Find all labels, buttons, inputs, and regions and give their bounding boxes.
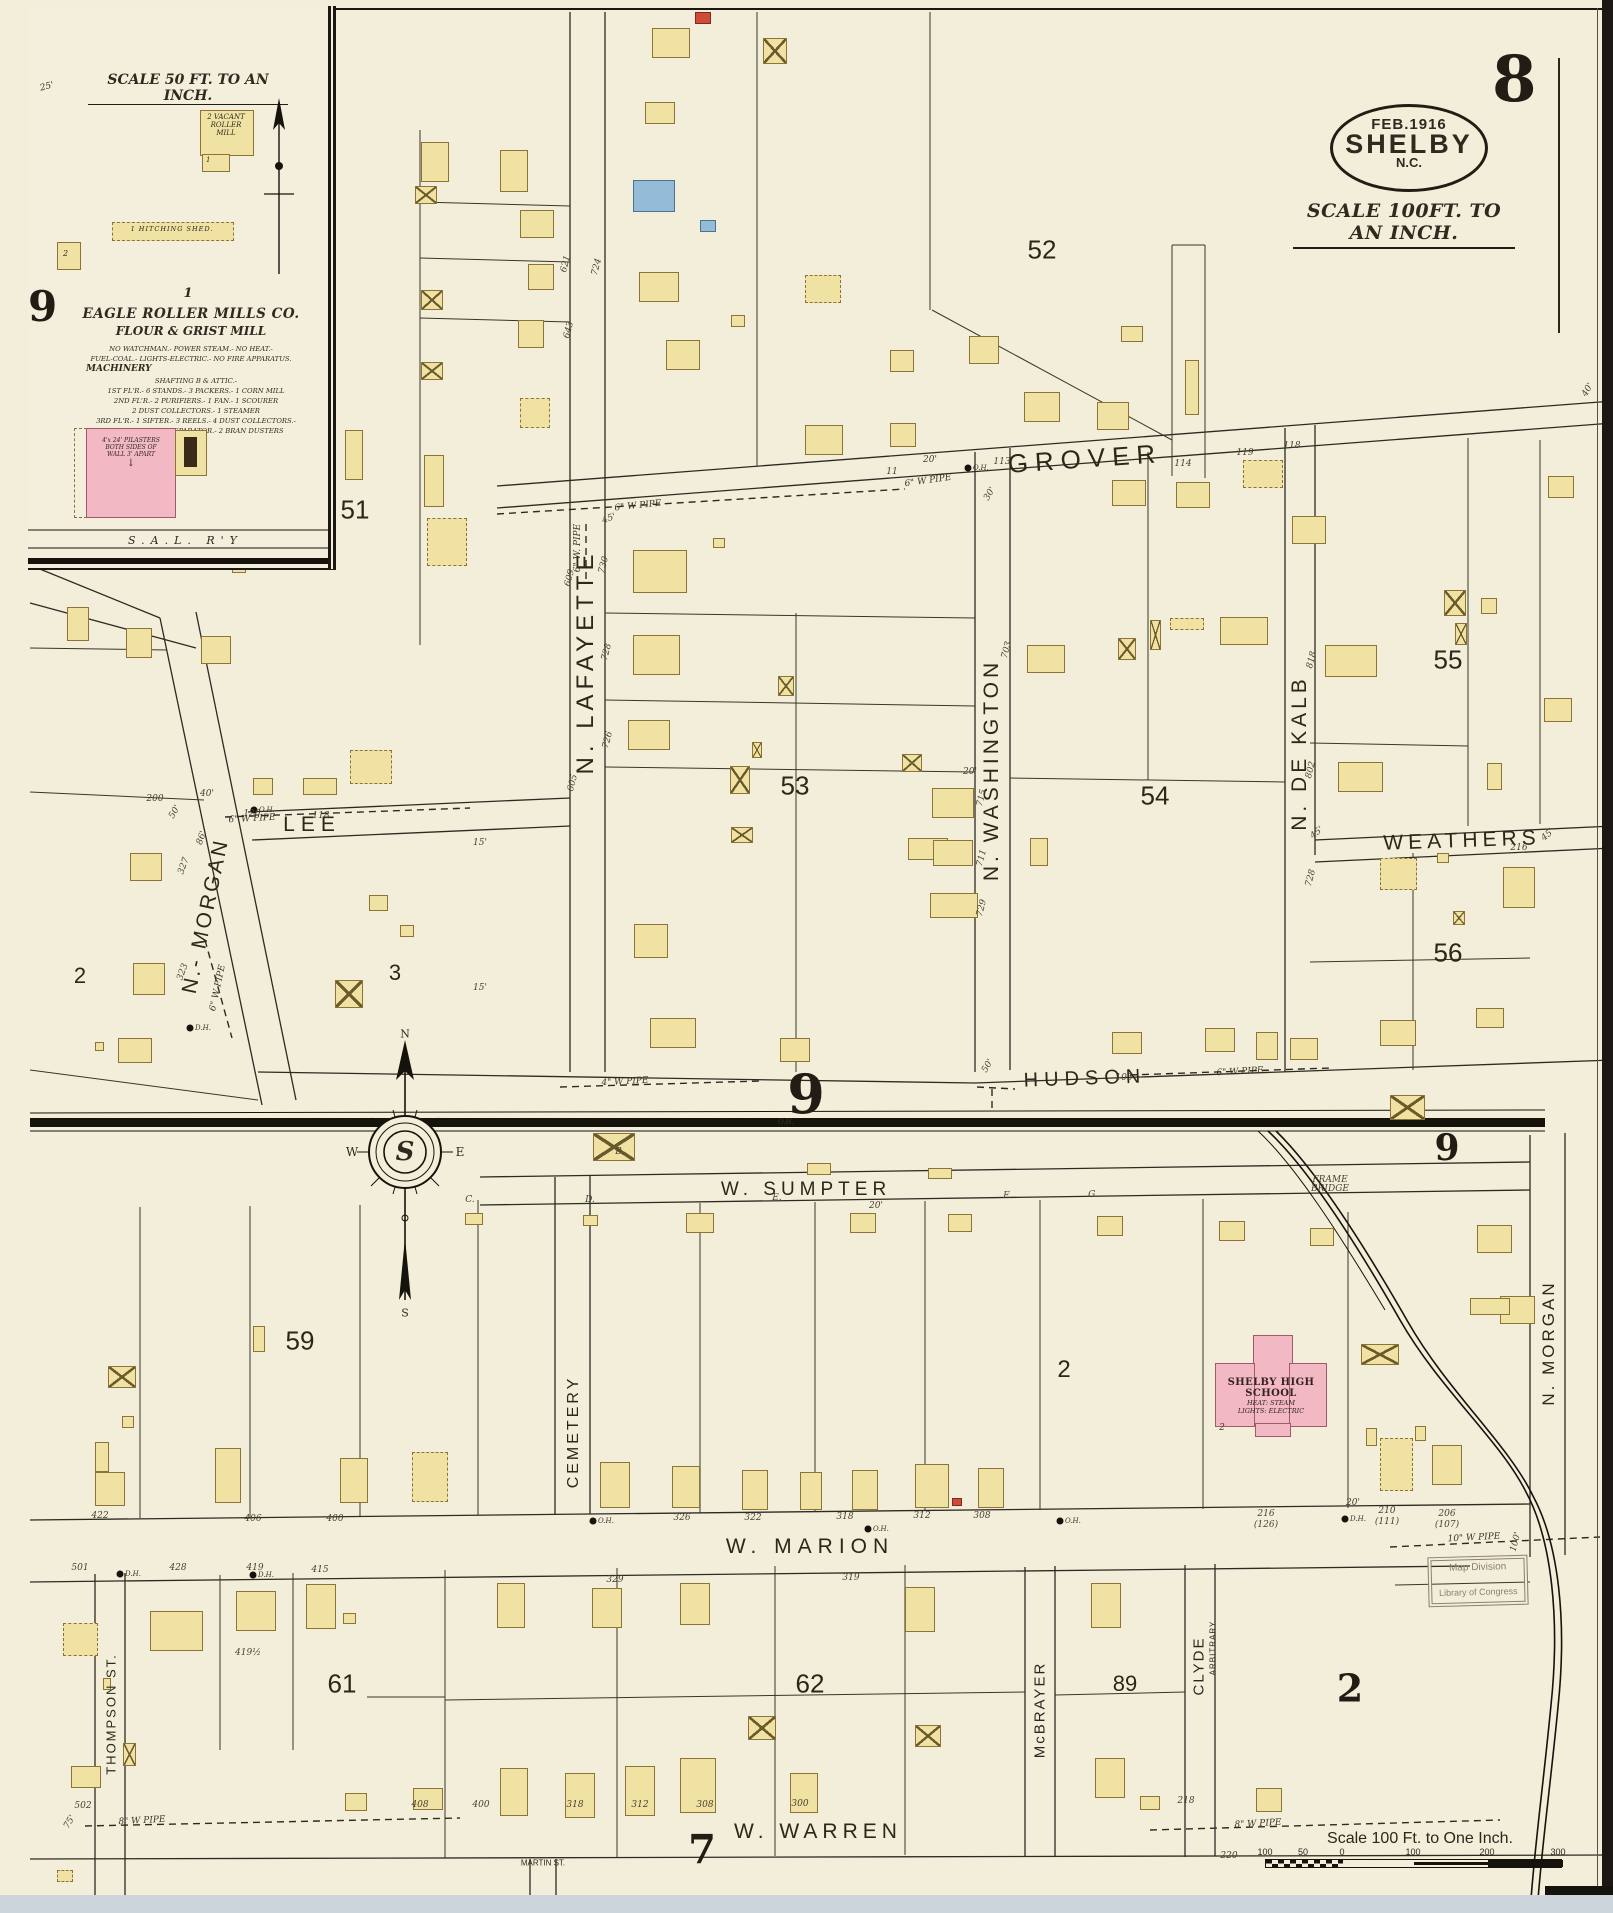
- boiler-house: [175, 430, 207, 476]
- school-heat: HEAT: STEAM: [1205, 1399, 1337, 1407]
- building: [1290, 1038, 1318, 1060]
- building: [666, 340, 700, 370]
- building: [133, 963, 165, 995]
- building: [633, 635, 680, 675]
- building: [763, 38, 787, 64]
- hydrant-label: D.H.: [195, 1024, 211, 1032]
- building: [415, 186, 437, 204]
- hydrant-marker: [187, 1025, 194, 1032]
- building: [303, 778, 337, 795]
- block-number: 2: [74, 963, 86, 989]
- building: [345, 430, 363, 480]
- building: [465, 1213, 483, 1225]
- house-number: 220: [1220, 1851, 1237, 1861]
- street-label: McBRAYER: [1032, 1662, 1049, 1759]
- inset-district-number: 9: [28, 282, 57, 331]
- street-label: ARBITRARY: [1209, 1621, 1218, 1676]
- building: [123, 1743, 136, 1766]
- building: [969, 336, 999, 364]
- building: [932, 788, 974, 818]
- building: [1205, 1028, 1235, 1052]
- building: [1310, 1228, 1334, 1246]
- street-label: W. SUMPTER: [721, 1179, 891, 1201]
- building: [645, 102, 675, 124]
- adjacent-sheet-number: 9: [787, 1062, 825, 1126]
- house-number: 216: [1257, 1509, 1274, 1519]
- machinery-list: SHAFTING B & ATTIC.-1ST FL'R.- 6 STANDS.…: [58, 376, 334, 436]
- building: [778, 676, 794, 696]
- inset-north-arrow: [264, 94, 294, 289]
- building: [748, 1716, 776, 1740]
- building: [1027, 645, 1065, 673]
- page-right-bar: [1602, 0, 1613, 1913]
- school-name: SHELBY HIGH SCHOOL: [1205, 1377, 1337, 1399]
- hydrant-label: D.H.: [1350, 1515, 1366, 1523]
- building: [1415, 1426, 1426, 1441]
- house-number: 210: [1378, 1506, 1395, 1516]
- house-number: 312: [631, 1800, 648, 1810]
- building: [1361, 1344, 1399, 1365]
- building: [952, 1498, 962, 1506]
- house-number: (107): [1435, 1520, 1459, 1530]
- hydrant-label: O.H.: [973, 464, 989, 472]
- hydrant-marker: [590, 1518, 597, 1525]
- building: [122, 1416, 134, 1428]
- building: [902, 754, 922, 772]
- hydrant-marker: [965, 465, 972, 472]
- building: [633, 180, 675, 212]
- house-number: 15': [473, 838, 487, 848]
- building: [1548, 476, 1574, 498]
- block-number: 61: [328, 1669, 357, 1700]
- street-label: THOMPSON ST.: [104, 1653, 119, 1775]
- compass-monogram: S: [396, 1137, 415, 1167]
- building: [639, 272, 679, 302]
- house-number: 218: [1177, 1796, 1194, 1806]
- house-number: 11: [886, 467, 897, 477]
- house-number: 206: [1438, 1509, 1455, 1519]
- building: [201, 636, 231, 664]
- building: [1140, 1796, 1160, 1810]
- scale-bar-tick: 100: [1405, 1847, 1420, 1857]
- street-label: N. MORGAN: [1539, 1280, 1559, 1405]
- main-scale-label: SCALE 100FT. TO AN INCH.: [1293, 200, 1515, 249]
- building: [1256, 1032, 1278, 1060]
- house-number: 400: [472, 1800, 489, 1810]
- building: [1091, 1583, 1121, 1628]
- street-label: W. WARREN: [734, 1820, 902, 1844]
- building: [672, 1466, 700, 1508]
- block-number: 89: [1113, 1671, 1137, 1697]
- mill-building: 4'x 24' PILASTERSBOTH SIDES OFWALL 3' AP…: [86, 428, 176, 518]
- building: [948, 1214, 972, 1232]
- building: [731, 315, 745, 327]
- sheet-number: 8: [1492, 42, 1537, 117]
- title-badge: FEB.1916 SHELBY N.C.: [1330, 104, 1488, 192]
- down-arrow: ↓: [87, 458, 175, 469]
- building: [412, 1452, 448, 1502]
- building: [95, 1442, 109, 1472]
- lot-letter: B.: [615, 1147, 624, 1157]
- scale-bar: [1265, 1859, 1562, 1868]
- compass-s: S: [401, 1307, 409, 1320]
- house-number: (126): [1254, 1520, 1278, 1530]
- stamp-line1: Map Division: [1429, 1561, 1527, 1575]
- building: [652, 28, 690, 58]
- house-number: 329: [606, 1575, 623, 1585]
- lot-letter: F.: [1003, 1191, 1011, 1201]
- adjacent-sheet-number: 7: [688, 1827, 716, 1874]
- house-number: 114: [1174, 459, 1191, 469]
- house-number: 308: [696, 1800, 713, 1810]
- hydrant-label: O.H.: [598, 1517, 614, 1525]
- building: [700, 220, 716, 232]
- street-label: CLYDE: [1191, 1637, 1208, 1696]
- vacant-roller-mill-label: 2 VACANTROLLERMILL: [200, 113, 252, 137]
- hydrant-marker: [865, 1526, 872, 1533]
- building: [686, 1213, 714, 1233]
- boiler: [184, 437, 197, 467]
- building: [565, 1773, 595, 1818]
- building: [130, 853, 162, 881]
- building: [1366, 1428, 1377, 1446]
- scale-bar-tick: 50: [1298, 1847, 1308, 1857]
- block-number: 51: [341, 495, 370, 526]
- building: [915, 1464, 949, 1508]
- sanborn-map-sheet: GROVERN. LAFAYETTEN. WASHINGTONN. DE KAL…: [0, 0, 1613, 1913]
- scale-bar-tick: 200: [1479, 1847, 1494, 1857]
- street-label: N. DE KALB: [1288, 675, 1312, 831]
- house-number: 119: [1236, 448, 1253, 458]
- building: [650, 1018, 696, 1048]
- inset-railroad-label: S.A.L. R'Y: [128, 534, 243, 547]
- building: [1481, 598, 1497, 614]
- hydrant-label: O.H.: [873, 1525, 889, 1533]
- house-number: 118: [312, 811, 329, 821]
- building: [1185, 360, 1199, 415]
- building: [1380, 1438, 1413, 1491]
- inset-small-building-label: 2: [63, 249, 68, 258]
- hydrant-marker: [770, 1119, 777, 1126]
- house-number: 502: [74, 1801, 91, 1811]
- house-number: 2: [1219, 1423, 1225, 1433]
- building: [424, 455, 444, 507]
- house-number: 415: [311, 1565, 328, 1575]
- building: [1453, 911, 1465, 925]
- adjacent-sheet-number: 2: [1337, 1666, 1363, 1711]
- building: [742, 1470, 768, 1510]
- vacant-mill-number: 1: [206, 156, 210, 164]
- house-number: 216: [1510, 843, 1527, 853]
- lot-letter: D.: [585, 1195, 595, 1205]
- building: [915, 1725, 941, 1747]
- building: [850, 1213, 876, 1233]
- building: [1380, 1020, 1416, 1046]
- page-top-border: [250, 8, 1602, 10]
- block-number: 2: [1057, 1356, 1070, 1384]
- scale-bar-seg3: [1488, 1860, 1563, 1867]
- block-number: 3: [389, 960, 401, 986]
- house-number: 105: [1115, 1073, 1132, 1083]
- house-number: 300: [791, 1799, 808, 1809]
- building: [1325, 645, 1377, 677]
- water-pipe-label: 6" W. PIPE: [573, 524, 583, 572]
- building: [126, 628, 152, 658]
- scale-bar-tick: 100: [1257, 1847, 1272, 1857]
- building: [518, 320, 544, 348]
- building: [905, 1587, 935, 1632]
- house-number: 501: [71, 1563, 88, 1573]
- building: [852, 1470, 878, 1510]
- building: [978, 1468, 1004, 1508]
- building: [343, 1613, 356, 1624]
- compass-w: W: [346, 1145, 358, 1159]
- building: [1470, 1298, 1510, 1315]
- building: [369, 895, 388, 911]
- hydrant-marker: [117, 1571, 124, 1578]
- block-number: 53: [781, 771, 810, 802]
- house-number: 428: [169, 1563, 186, 1573]
- building: [520, 398, 550, 428]
- building: [780, 1038, 810, 1062]
- building: [633, 550, 687, 593]
- mill-type: FLOUR & GRIST MILL: [71, 324, 311, 338]
- block-number: 52: [1028, 235, 1057, 266]
- building: [421, 142, 449, 182]
- building: [890, 350, 914, 372]
- building: [695, 12, 711, 24]
- building: [890, 423, 916, 447]
- inset-panel: 25' SCALE 50 FT. TO AN INCH. 2 VACANTROL…: [28, 6, 336, 570]
- building: [108, 1366, 136, 1388]
- map-right-border: [1558, 58, 1560, 333]
- library-stamp: Map Division Library of Congress: [1427, 1555, 1528, 1608]
- building: [95, 1472, 125, 1506]
- building: [600, 1462, 630, 1508]
- badge-city: SHELBY: [1333, 133, 1485, 155]
- house-number: 20': [869, 1201, 883, 1211]
- house-number: 319: [842, 1573, 859, 1583]
- building: [421, 362, 443, 380]
- house-number: (111): [1375, 1517, 1399, 1527]
- building: [1380, 858, 1417, 890]
- house-number: 15': [473, 983, 487, 993]
- building: [340, 1458, 368, 1503]
- lot-letter: E.: [772, 1193, 781, 1203]
- building: [350, 750, 392, 784]
- building: [1112, 1032, 1142, 1054]
- building: [1024, 392, 1060, 422]
- building: [57, 1870, 73, 1882]
- building: [253, 1326, 265, 1352]
- block-number: 55: [1434, 645, 1463, 676]
- house-number: 400: [326, 1514, 343, 1524]
- building: [1477, 1225, 1512, 1253]
- building: [730, 766, 750, 794]
- building: [1503, 867, 1535, 908]
- house-number: 318: [566, 1800, 583, 1810]
- building: [1455, 623, 1467, 645]
- block-number: 59: [286, 1326, 315, 1357]
- house-number: 200: [146, 794, 163, 804]
- building: [1170, 618, 1204, 630]
- building: [1544, 698, 1572, 722]
- street-label: W. MARION: [726, 1535, 894, 1559]
- building: [1390, 1095, 1425, 1120]
- building: [805, 425, 843, 455]
- building: [805, 275, 841, 303]
- school-lights: LIGHTS: ELECTRIC: [1205, 1407, 1337, 1415]
- compass-n: N: [400, 1028, 410, 1041]
- building: [335, 980, 363, 1008]
- building: [1243, 460, 1283, 488]
- mill-number: 1: [178, 286, 198, 301]
- building: [400, 925, 414, 937]
- building: [500, 150, 528, 192]
- building: [1444, 590, 1466, 616]
- building: [215, 1448, 241, 1503]
- railroad-spur: [1258, 1131, 1562, 1913]
- building: [1292, 516, 1326, 544]
- page-bottom-edge: [0, 1895, 1613, 1913]
- building: [118, 1038, 152, 1063]
- building: [1432, 1445, 1462, 1485]
- inset-small-building: [57, 242, 81, 270]
- building: [1097, 402, 1129, 430]
- building: [1150, 620, 1161, 650]
- house-number: 419½: [235, 1648, 261, 1658]
- block-number: 62: [796, 1669, 825, 1700]
- building: [731, 827, 753, 843]
- building: [583, 1215, 598, 1226]
- building: [528, 264, 554, 290]
- building: [95, 1042, 104, 1051]
- house-number: 419: [246, 1563, 263, 1573]
- bottom-scale-label: Scale 100 Ft. to One Inch.: [1300, 1830, 1540, 1848]
- block-number: 56: [1434, 938, 1463, 969]
- building: [520, 210, 554, 238]
- building: [1256, 1788, 1282, 1812]
- scale-bar-seg2: [1414, 1860, 1488, 1867]
- building: [930, 893, 978, 918]
- building: [63, 1623, 98, 1656]
- building: [427, 518, 467, 566]
- house-number: 406: [244, 1514, 261, 1524]
- building: [752, 742, 762, 758]
- building: [150, 1611, 203, 1651]
- building: [933, 840, 973, 866]
- building: [345, 1793, 367, 1811]
- compass-rose: [357, 1040, 453, 1300]
- inset-scale-label: SCALE 50 FT. TO AN INCH.: [88, 72, 288, 105]
- shelby-high-school-building: SHELBY HIGH SCHOOL HEAT: STEAM LIGHTS: E…: [1215, 1335, 1327, 1439]
- house-number: 20': [923, 455, 937, 465]
- house-number: 308: [973, 1511, 990, 1521]
- street-label: MARTIN ST.: [521, 1859, 565, 1868]
- scale-bar-tick: 0: [1339, 1847, 1344, 1857]
- house-number: 326: [673, 1513, 690, 1523]
- building: [1118, 638, 1136, 660]
- street-label: N. LAFAYETTE: [572, 550, 600, 775]
- building: [1476, 1008, 1504, 1028]
- street-label: CEMETERY: [565, 1376, 583, 1489]
- mill-name: EAGLE ROLLER MILLS CO.: [71, 306, 311, 322]
- hydrant-label: D.H.: [125, 1570, 141, 1578]
- building: [628, 720, 670, 750]
- building: [1095, 1758, 1125, 1798]
- building: [592, 1588, 622, 1628]
- building: [1219, 1221, 1245, 1241]
- hitching-shed-label: 1 HITCHING SHED.: [116, 225, 228, 233]
- mill-notes: NO WATCHMAN.- POWER STEAM.- NO HEAT.-FUE…: [58, 344, 324, 364]
- house-number: BRIDGE: [1311, 1184, 1349, 1194]
- building: [1121, 326, 1143, 342]
- house-number: 20': [1346, 1498, 1360, 1508]
- building: [253, 778, 273, 795]
- stamp-line2: Library of Congress: [1429, 1586, 1527, 1599]
- hydrant-marker: [1057, 1518, 1064, 1525]
- building: [680, 1583, 710, 1625]
- street-label: N. WASHINGTON: [980, 659, 1004, 881]
- building: [593, 1133, 635, 1161]
- building: [1112, 480, 1146, 506]
- building: [497, 1583, 525, 1628]
- building: [306, 1584, 336, 1629]
- house-number: 408: [411, 1800, 428, 1810]
- building: [1176, 482, 1210, 508]
- building: [713, 538, 725, 548]
- house-number: 20': [963, 767, 977, 777]
- building: [1487, 763, 1502, 790]
- inset-rail-lines: [28, 526, 328, 568]
- building: [67, 607, 89, 641]
- scale-bar-tick: 300: [1550, 1847, 1565, 1857]
- building: [1220, 617, 1268, 645]
- building: [421, 290, 443, 310]
- building: [807, 1163, 831, 1175]
- hydrant-marker: [1342, 1516, 1349, 1523]
- adjacent-sheet-number: 9: [1434, 1127, 1459, 1169]
- building: [1097, 1216, 1123, 1236]
- building: [634, 924, 668, 958]
- house-number: 40': [200, 789, 214, 799]
- building: [71, 1766, 101, 1788]
- building: [236, 1591, 276, 1631]
- machinery-title: MACHINERY: [86, 364, 152, 374]
- compass-e: E: [456, 1145, 465, 1159]
- building: [1437, 853, 1449, 863]
- lot-letter: C.: [465, 1195, 474, 1205]
- hydrant-label: O.H.: [1065, 1517, 1081, 1525]
- house-number: 322: [744, 1513, 761, 1523]
- building: [800, 1472, 822, 1510]
- building: [500, 1768, 528, 1816]
- block-number: 54: [1141, 781, 1170, 812]
- house-number: 312: [913, 1511, 930, 1521]
- building: [1030, 838, 1048, 866]
- inset-corner-dim: 25': [39, 80, 55, 93]
- house-number: 422: [91, 1511, 108, 1521]
- building: [928, 1168, 952, 1179]
- building: [1338, 762, 1383, 792]
- scale-bar-checker: [1266, 1860, 1343, 1867]
- house-number: 118: [1283, 441, 1300, 451]
- map-right-edge: [1597, 8, 1598, 1908]
- pilaster-note: 4'x 24' PILASTERSBOTH SIDES OFWALL 3' AP…: [87, 437, 175, 458]
- lot-letter: G.: [1088, 1190, 1098, 1200]
- house-number: 318: [836, 1512, 853, 1522]
- house-number: 113: [993, 457, 1010, 467]
